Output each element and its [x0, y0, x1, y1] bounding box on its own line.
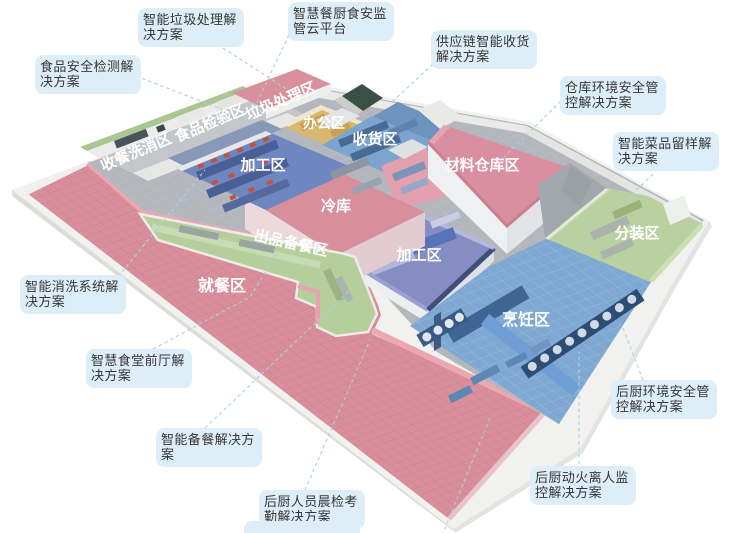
svg-text:材料仓库区: 材料仓库区 — [444, 156, 519, 174]
svg-text:办公区: 办公区 — [303, 115, 345, 131]
svg-text:分装区: 分装区 — [614, 224, 659, 242]
svg-text:冷库: 冷库 — [321, 197, 351, 215]
svg-text:就餐区: 就餐区 — [198, 276, 246, 295]
svg-text:烹饪区: 烹饪区 — [502, 310, 550, 329]
svg-text:加工区: 加工区 — [395, 247, 441, 264]
svg-text:加工区: 加工区 — [239, 157, 285, 174]
svg-text:收货区: 收货区 — [352, 130, 397, 148]
